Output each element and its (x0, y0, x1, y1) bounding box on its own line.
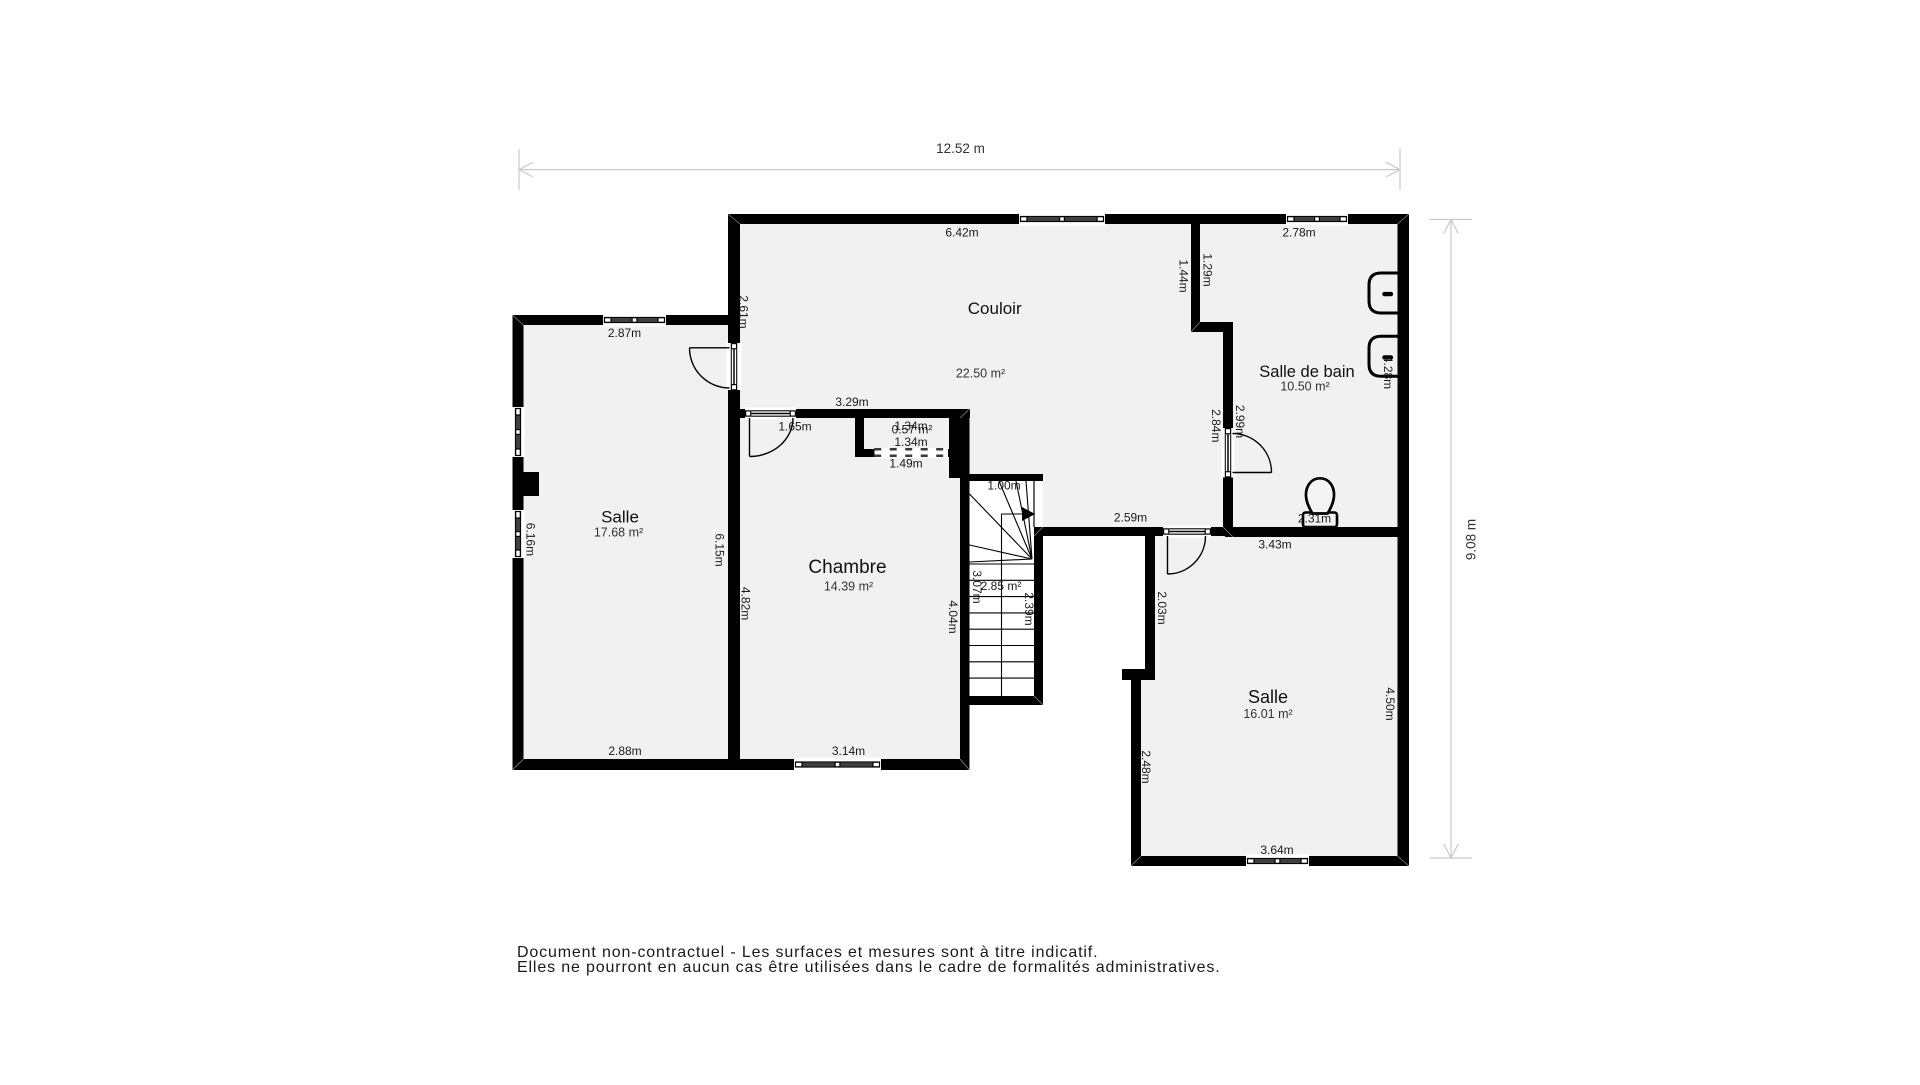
svg-text:12.52 m: 12.52 m (936, 141, 985, 156)
svg-text:4.50m: 4.50m (1383, 687, 1397, 720)
svg-text:1.29m: 1.29m (1201, 253, 1215, 286)
svg-text:2.59m: 2.59m (1114, 511, 1147, 525)
svg-text:2.85 m²: 2.85 m² (981, 579, 1022, 593)
svg-text:4.04m: 4.04m (946, 600, 960, 633)
svg-text:2.48m: 2.48m (1139, 750, 1153, 783)
svg-text:Salle de bain: Salle de bain (1259, 363, 1354, 381)
svg-text:2.31m: 2.31m (1298, 512, 1331, 526)
svg-text:16.01 m²: 16.01 m² (1243, 707, 1292, 721)
svg-text:6.15m: 6.15m (713, 533, 727, 566)
svg-text:4.82m: 4.82m (739, 587, 753, 620)
svg-text:3.07m: 3.07m (970, 570, 984, 603)
svg-text:2.88m: 2.88m (608, 744, 641, 758)
svg-text:17.68 m²: 17.68 m² (594, 526, 643, 540)
svg-text:1.49m: 1.49m (889, 456, 922, 470)
svg-text:22.50 m²: 22.50 m² (956, 367, 1005, 381)
svg-text:3.29m: 3.29m (835, 395, 868, 409)
svg-text:4.28m: 4.28m (1381, 356, 1395, 389)
svg-text:2.87m: 2.87m (608, 326, 641, 340)
svg-text:Salle: Salle (1248, 687, 1288, 707)
svg-text:2.03m: 2.03m (1155, 591, 1169, 624)
svg-text:6.16m: 6.16m (524, 523, 538, 556)
svg-text:2.39m: 2.39m (1022, 592, 1036, 625)
svg-text:2.61m: 2.61m (737, 295, 751, 328)
svg-text:Salle: Salle (601, 507, 639, 526)
svg-text:1.44m: 1.44m (1177, 259, 1191, 292)
svg-text:3.14m: 3.14m (832, 744, 865, 758)
svg-text:2.78m: 2.78m (1282, 226, 1315, 240)
svg-text:Couloir: Couloir (968, 299, 1022, 318)
svg-text:1.00m: 1.00m (987, 479, 1020, 493)
svg-text:10.50 m²: 10.50 m² (1280, 380, 1329, 394)
svg-text:1.34m: 1.34m (894, 435, 927, 449)
svg-text:9.08 m: 9.08 m (1464, 519, 1479, 560)
svg-text:1.65m: 1.65m (778, 420, 811, 434)
svg-text:14.39 m²: 14.39 m² (824, 579, 873, 593)
svg-text:3.64m: 3.64m (1260, 843, 1293, 857)
svg-text:3.43m: 3.43m (1258, 538, 1291, 552)
svg-text:6.42m: 6.42m (945, 226, 978, 240)
svg-text:2.84m: 2.84m (1209, 409, 1223, 442)
svg-text:Chambre: Chambre (808, 557, 886, 578)
svg-text:2.99m: 2.99m (1233, 405, 1247, 438)
